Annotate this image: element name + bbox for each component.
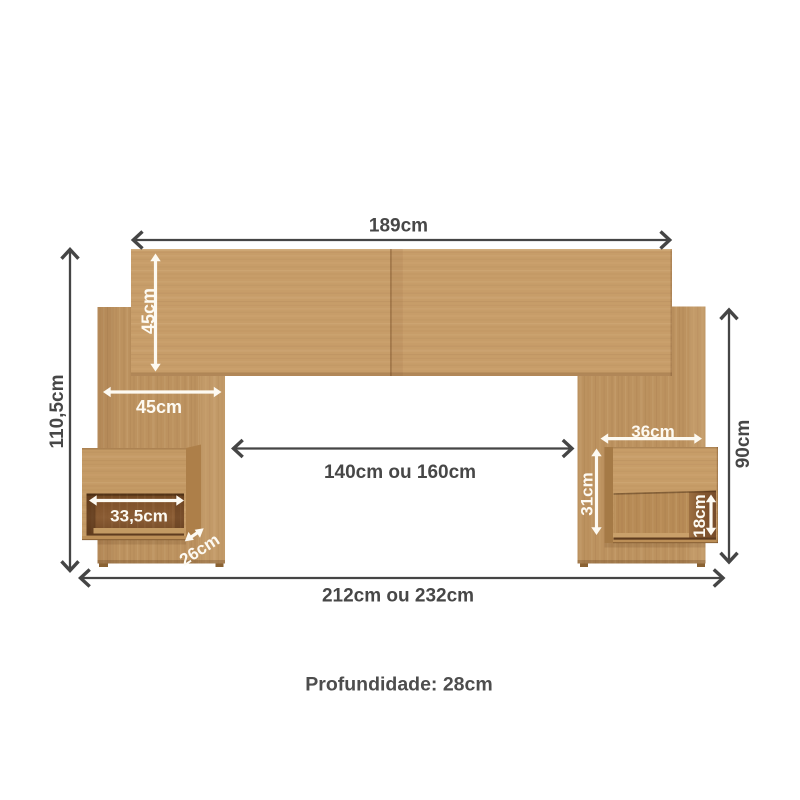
svg-text:36cm: 36cm <box>631 422 674 441</box>
svg-text:31cm: 31cm <box>578 472 597 515</box>
svg-text:Profundidade: 28cm: Profundidade: 28cm <box>305 674 492 696</box>
svg-text:45cm: 45cm <box>139 288 159 334</box>
svg-text:45cm: 45cm <box>136 397 182 417</box>
svg-text:18cm: 18cm <box>690 494 709 537</box>
svg-text:33,5cm: 33,5cm <box>110 507 168 526</box>
svg-text:212cm ou 232cm: 212cm ou 232cm <box>322 586 474 607</box>
svg-text:110,5cm: 110,5cm <box>47 375 68 449</box>
svg-text:140cm ou 160cm: 140cm ou 160cm <box>324 462 476 483</box>
svg-text:189cm: 189cm <box>369 215 428 236</box>
svg-text:90cm: 90cm <box>733 420 754 469</box>
